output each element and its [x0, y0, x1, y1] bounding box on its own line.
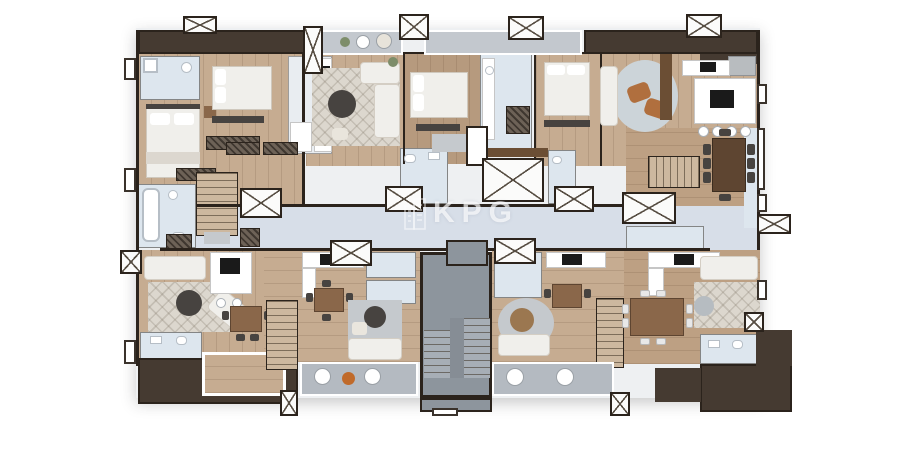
sink-center-1	[428, 152, 440, 160]
exterior-wall-top-right	[584, 30, 758, 54]
shaft-vent-left	[120, 250, 142, 274]
kitchen-tr-cooktop	[710, 90, 734, 108]
chair-right-6	[747, 172, 755, 183]
chair-right-1	[703, 144, 711, 155]
kitchen-tr-hood	[700, 62, 716, 72]
chair-br-3	[686, 304, 693, 314]
washer-tl	[143, 58, 158, 73]
balcony-table-orange	[342, 372, 355, 385]
kitchen-bcr-cooktop	[562, 254, 582, 265]
window-strip-right	[757, 128, 765, 190]
chair-right-5	[747, 158, 755, 169]
window-tab-right-2	[757, 194, 767, 212]
shaft-vent-br	[744, 312, 764, 332]
chair-bcl-4	[322, 314, 331, 321]
chair-bl-1	[222, 311, 229, 320]
chair-right-7	[719, 129, 731, 136]
kpg-watermark: KPG	[402, 196, 519, 230]
bed-tl-pillow-1	[150, 113, 170, 125]
chair-br-7	[640, 338, 650, 345]
shaft-vent-bottom-1	[280, 390, 298, 416]
dining-table-bl	[230, 306, 262, 332]
elevator-left-unit	[240, 188, 282, 218]
wall-perimeter-left	[136, 30, 139, 366]
shaft-vent-top-2	[399, 14, 429, 40]
coffee-table-bl	[176, 290, 202, 316]
balcony-chair-bcl-2	[364, 368, 381, 385]
chair-right-8	[719, 194, 731, 201]
sink-tc	[485, 66, 494, 75]
window-tab-right-1	[757, 84, 767, 104]
shaft-vent-bottom-2	[610, 392, 630, 416]
window-tab-left-1	[124, 58, 136, 80]
bathtub-mid-left	[142, 188, 160, 242]
sink-bl	[150, 336, 162, 344]
chair-br-1	[622, 304, 629, 314]
kitchen-bl-cooktop	[220, 258, 240, 274]
shaft-vent-top-3	[508, 16, 544, 40]
core-stairs-left	[424, 330, 450, 378]
kpg-building-icon	[402, 196, 428, 230]
coffee-table-tc	[328, 90, 356, 118]
floorplan-canvas: KPG	[0, 0, 900, 450]
core-stairs-right	[464, 318, 490, 378]
stool-tr-4	[740, 126, 751, 137]
chair-bcr-1	[544, 289, 551, 298]
shaft-vent-top-4	[686, 14, 722, 38]
coffee-table-br	[694, 296, 714, 316]
balcony-table-1	[356, 35, 370, 49]
chair-right-2	[703, 158, 711, 169]
dining-table-bcl	[314, 288, 344, 312]
chair-bcl-3	[322, 280, 331, 287]
core-lift	[446, 240, 488, 266]
balcony-top-2	[424, 30, 582, 55]
bed-tr-pillow-1	[547, 65, 565, 75]
bed-tr-pillow-2	[567, 65, 585, 75]
kitchen-tr-corner-cab	[728, 56, 756, 76]
shaft-vent-right	[757, 214, 791, 234]
bed-tc-pillow-2	[413, 94, 424, 111]
bed-tm-pillow-1	[215, 69, 226, 85]
bath-right-strip	[626, 226, 704, 250]
window-tab-left-3	[124, 340, 136, 364]
chair-br-2	[622, 318, 629, 328]
toilet-br	[732, 340, 743, 349]
bed-tm-pillow-2	[215, 87, 226, 103]
pouf-tc	[332, 128, 348, 140]
chair-right-4	[747, 144, 755, 155]
wardrobe-corridor-2	[240, 228, 260, 247]
balcony-chair-bcr-2	[556, 368, 574, 386]
exterior-wall-bottom-right-step	[655, 368, 701, 402]
stool-bl-1	[216, 298, 226, 308]
sofa-br	[700, 256, 758, 280]
toilet-bl	[176, 336, 187, 345]
sofa-bcr	[498, 334, 550, 356]
chair-br-5	[640, 290, 650, 297]
balcony-chair-bcr-1	[506, 368, 524, 386]
balcony-table-2	[376, 33, 392, 49]
exterior-wall-top-left	[138, 30, 306, 54]
pouf-bcl	[352, 322, 367, 335]
chair-br-8	[656, 338, 666, 345]
wardrobe-hall-1	[226, 142, 260, 155]
stairs-bl	[266, 300, 298, 370]
kpg-watermark-text: KPG	[433, 196, 519, 230]
chair-bcl-1	[306, 293, 313, 302]
stairs-right-unit	[648, 156, 700, 188]
dining-table-right	[712, 138, 746, 192]
stairs-bcr	[596, 298, 624, 368]
shaft-tall-top	[303, 26, 323, 74]
toilet-center-1	[404, 154, 416, 163]
sofa-tr	[600, 66, 618, 126]
toilet-center-2	[552, 156, 562, 164]
shaft-corridor-c	[330, 240, 372, 266]
shaft-vent-top-1	[183, 16, 217, 34]
wall-corridor-bottom	[160, 248, 710, 251]
elevator-right-unit	[622, 192, 676, 224]
balcony-chair-bcl-1	[314, 368, 331, 385]
dining-table-bcr	[552, 284, 582, 308]
bed-tc-pillow-1	[413, 75, 424, 92]
bath-bcl-wc	[366, 252, 416, 278]
chair-br-4	[686, 318, 693, 328]
sofa-bcl	[348, 338, 402, 360]
exterior-wall-right-edge	[756, 330, 792, 366]
sink-br	[708, 340, 720, 348]
tv-console-tr	[660, 54, 672, 120]
door-tab-core	[432, 408, 458, 416]
chair-bl-4	[250, 334, 259, 341]
bed-tl-throw	[146, 152, 200, 164]
chair-bcr-2	[584, 289, 591, 298]
chair-bl-3	[236, 334, 245, 341]
stool-tr-1	[698, 126, 709, 137]
bench-tr	[544, 120, 590, 127]
wall-divider-2	[403, 54, 405, 164]
core-mid-wall	[450, 318, 464, 378]
wardrobe-corridor-1	[166, 234, 192, 249]
exterior-wall-bottom-right	[700, 364, 792, 412]
wardrobe-tc	[506, 106, 530, 134]
shelf-center	[486, 148, 548, 157]
doormat-corridor	[204, 232, 230, 244]
bench-tc	[416, 124, 460, 131]
balcony-plant-1	[340, 37, 350, 47]
wardrobe-hall-2	[263, 142, 298, 155]
kitchen-br-cooktop	[674, 254, 694, 265]
shaft-corridor-d	[494, 238, 536, 264]
coffee-table-bcl	[364, 306, 386, 328]
sofa-bl	[144, 256, 206, 280]
plant-tc	[388, 57, 398, 67]
bed-tl-headboard	[146, 104, 200, 109]
window-tab-left-2	[124, 168, 136, 192]
shaft-corridor-b	[554, 186, 594, 212]
sink-tl	[181, 62, 192, 73]
chair-br-6	[656, 290, 666, 297]
bath-bottom-right	[700, 334, 758, 364]
dresser-tm	[212, 116, 264, 123]
coffee-table-bcr	[510, 308, 534, 332]
chair-right-3	[703, 172, 711, 183]
dining-table-br	[630, 298, 684, 336]
sofa-tc-side	[374, 84, 400, 138]
sink-mid-left	[168, 190, 178, 200]
bed-tl-pillow-2	[174, 113, 194, 125]
window-tab-right-3	[757, 280, 767, 300]
